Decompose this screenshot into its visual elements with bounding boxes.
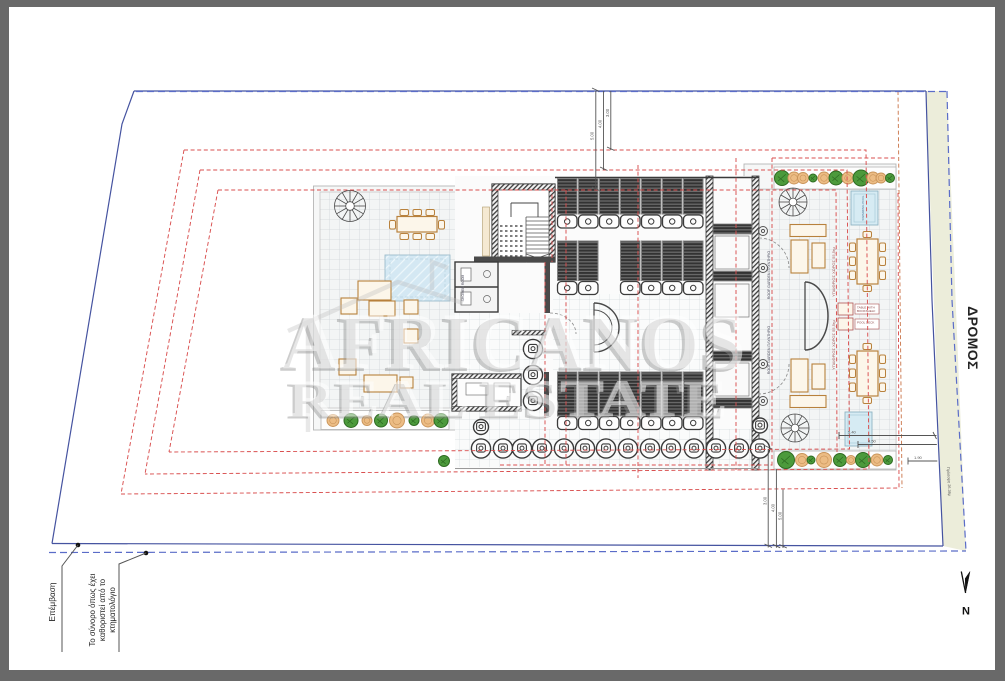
- svg-text:Επέμβαση: Επέμβαση: [47, 582, 57, 621]
- svg-text:4.00: 4.00: [598, 119, 603, 128]
- svg-text:ROOF GARDEN ΠΛΥΝΤΗΡΙΟ: ROOF GARDEN ΠΛΥΝΤΗΡΙΟ: [767, 251, 771, 300]
- svg-text:ΥΠΑΙΘΡΙΟΣ ΧΩΡΟΣ 55,5τμ: ΥΠΑΙΘΡΙΟΣ ΧΩΡΟΣ 55,5τμ: [831, 247, 836, 297]
- svg-text:SHOWER ROOM: SHOWER ROOM: [461, 274, 465, 301]
- svg-text:ROOF GARDEN ΠΛΥΝΤΗΡΙΟ: ROOF GARDEN ΠΛΥΝΤΗΡΙΟ: [767, 326, 771, 375]
- svg-text:3.00: 3.00: [605, 108, 610, 117]
- svg-text:ΥΠΑΙΘΡΙΟΣ ΧΩΡΟΣ 55,5τμ: ΥΠΑΙΘΡΙΟΣ ΧΩΡΟΣ 55,5τμ: [831, 320, 836, 370]
- svg-text:N: N: [962, 606, 970, 618]
- svg-text:καθοριστεί από το: καθοριστεί από το: [98, 578, 107, 641]
- svg-text:ΔΡΟΜΟΣ: ΔΡΟΜΟΣ: [965, 306, 981, 370]
- svg-text:Το σύνορο όπως έχει: Το σύνορο όπως έχει: [88, 573, 97, 646]
- svg-text:POOL DECK: POOL DECK: [857, 321, 874, 325]
- svg-text:3.00: 3.00: [763, 496, 768, 505]
- svg-text:BOOKSHELF: BOOKSHELF: [857, 309, 876, 313]
- svg-text:5.00: 5.00: [777, 511, 782, 520]
- svg-text:REAL ESTATE: REAL ESTATE: [289, 371, 727, 428]
- svg-text:5.00: 5.00: [590, 131, 595, 140]
- svg-text:SWIMMING POOL: SWIMMING POOL: [861, 195, 865, 220]
- svg-text:4.50: 4.50: [868, 439, 877, 444]
- svg-text:κτηματολόγιο: κτηματολόγιο: [108, 587, 117, 633]
- svg-text:1.90: 1.90: [914, 455, 923, 460]
- svg-text:5.40: 5.40: [848, 430, 857, 435]
- svg-text:4.00: 4.00: [771, 503, 776, 512]
